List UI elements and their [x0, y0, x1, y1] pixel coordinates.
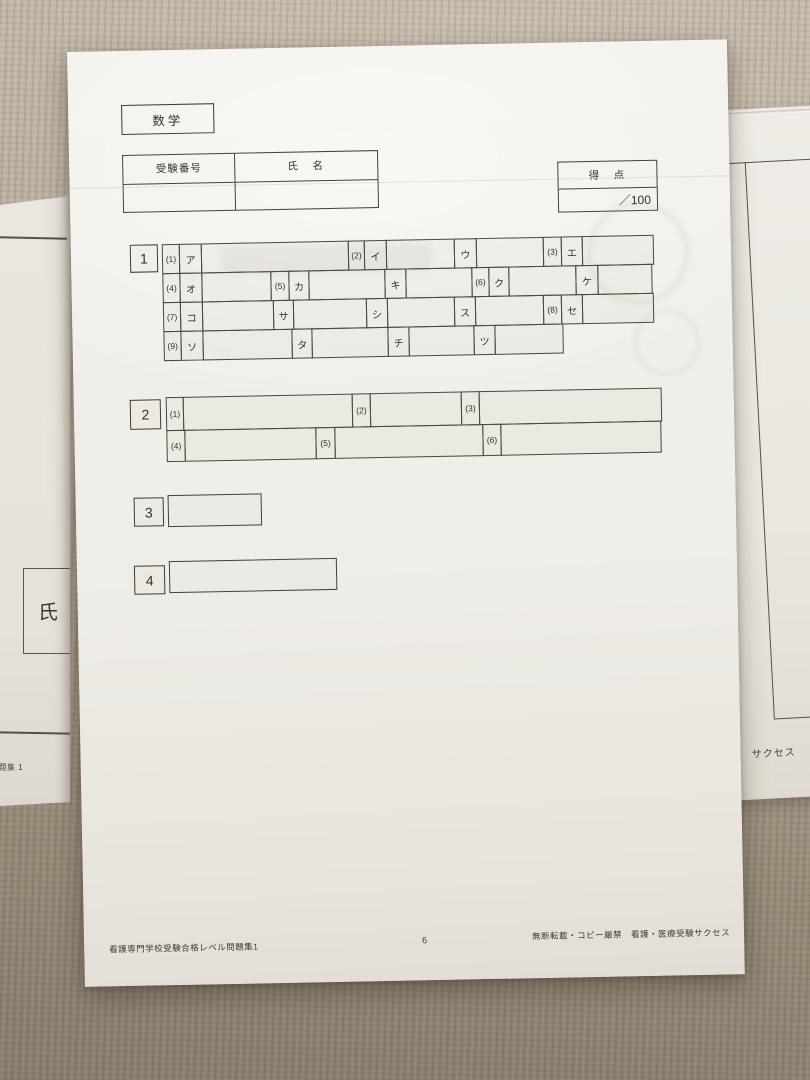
kana-answer-label: コ	[180, 301, 204, 331]
answer-cell	[201, 241, 350, 274]
sub-question-number-label: (3)	[461, 391, 481, 425]
answer-cell	[387, 297, 456, 328]
kana-answer-label: セ	[561, 294, 584, 324]
exam-number-header: 受験番号	[123, 154, 236, 184]
answer-cell	[475, 295, 545, 326]
answer-cell	[405, 267, 473, 298]
sub-question-number-label: (2)	[352, 393, 372, 427]
sub-question-number-label: (5)	[270, 271, 290, 301]
footer-book-title: 看護専門学校受験合格レベル問題集1	[109, 940, 258, 955]
left-sheet-footer-text: 問題集 1	[0, 762, 23, 773]
right-sheet-footer-text: サクセス	[751, 743, 796, 760]
left-sheet-border-line	[0, 236, 67, 239]
answer-cell	[494, 324, 564, 355]
kana-answer-label: キ	[384, 269, 407, 299]
question-4-answer-box	[169, 558, 338, 593]
kana-answer-label: オ	[179, 272, 203, 302]
answer-cell	[308, 269, 386, 300]
kana-answer-label: ソ	[180, 330, 204, 360]
left-sheet-name-label: 氏	[38, 596, 58, 625]
right-sheet-border-line-vertical	[745, 162, 775, 719]
answer-cell	[202, 300, 275, 331]
sub-question-number-label: (2)	[348, 240, 366, 270]
sub-question-number-label: (7)	[163, 302, 182, 332]
kana-answer-label: ス	[454, 296, 477, 326]
answer-cell	[479, 388, 663, 426]
sub-question-number-label: (1)	[162, 244, 181, 274]
answer-cell	[334, 424, 484, 459]
name-entry-cell	[236, 180, 379, 210]
kana-answer-label: チ	[387, 326, 410, 356]
kana-answer-label: エ	[561, 236, 584, 266]
answer-cell	[408, 325, 475, 356]
left-sheet-bottom-line	[0, 731, 70, 734]
answer-cell	[293, 298, 368, 329]
sub-question-number-label: (4)	[162, 273, 181, 303]
answer-sheet-paper: 数学 受験番号 氏 名 得 点 ／100 1 (1)ア(2)イウ(3)エ(4)オ…	[67, 39, 745, 986]
kana-answer-label: タ	[291, 328, 313, 358]
answer-cell	[311, 327, 389, 358]
sub-question-number-label: (3)	[543, 237, 563, 267]
answer-cell	[201, 271, 272, 302]
answer-cell	[597, 264, 653, 295]
score-box: 得 点 ／100	[557, 160, 658, 213]
answer-cell	[184, 427, 317, 462]
background-paper-left: 氏 問題集 1	[0, 196, 70, 808]
right-sheet-border-line-top	[726, 157, 810, 164]
score-denominator: ／100	[559, 188, 657, 212]
question-1-number-box: 1	[130, 244, 159, 273]
question-1-answer-grid: (1)ア(2)イウ(3)エ(4)オ(5)カキ(6)クケ(7)コサシス(8)セ(9…	[162, 235, 656, 361]
answer-cell	[386, 239, 456, 270]
examinee-info-table: 受験番号 氏 名	[122, 150, 379, 213]
answer-cell	[582, 235, 655, 266]
question-3-number-box: 3	[134, 497, 165, 527]
kana-answer-label: シ	[366, 298, 389, 328]
answer-cell	[202, 329, 293, 361]
kana-answer-label: ケ	[575, 265, 599, 295]
kana-answer-label: ウ	[454, 238, 478, 268]
subject-title: 数学	[152, 109, 183, 129]
footer-copyright: 無断転載・コピー厳禁 看護・医療受験サクセス	[532, 926, 730, 942]
subject-title-box: 数学	[121, 103, 215, 135]
answer-cell	[183, 394, 354, 431]
sub-question-number-label: (5)	[315, 427, 336, 459]
kana-answer-label: ク	[488, 267, 510, 297]
sub-question-number-label: (1)	[166, 397, 185, 431]
question-3-answer-box	[168, 493, 263, 527]
kana-answer-label: イ	[364, 240, 388, 270]
question-4-number-box: 4	[134, 565, 166, 595]
score-label: 得 点	[558, 161, 657, 190]
answer-cell	[476, 237, 545, 268]
answer-cell	[508, 265, 577, 296]
question-2-number-box: 2	[130, 399, 162, 430]
kana-answer-label: サ	[273, 300, 295, 330]
right-sheet-border-line-bottom	[774, 714, 810, 720]
kana-answer-label: ツ	[473, 325, 496, 355]
answer-cell	[500, 421, 662, 456]
exam-number-entry-cell	[124, 182, 237, 212]
answer-cell	[582, 293, 655, 324]
kana-answer-label: ア	[179, 243, 203, 273]
sub-question-number-label: (6)	[482, 424, 502, 456]
question-2-answer-grid: (1)(2)(3)(4)(5)(6)	[166, 388, 663, 463]
sub-question-number-label: (9)	[163, 331, 182, 361]
answer-cell	[370, 391, 463, 427]
sub-question-number-label: (4)	[166, 430, 186, 462]
kana-answer-label: カ	[288, 270, 310, 300]
footer-page-number: 6	[422, 935, 428, 945]
name-header: 氏 名	[235, 151, 378, 181]
sub-question-number-label: (6)	[471, 267, 490, 297]
examinee-info-entry-row	[124, 179, 379, 212]
sub-question-number-label: (8)	[543, 295, 563, 325]
